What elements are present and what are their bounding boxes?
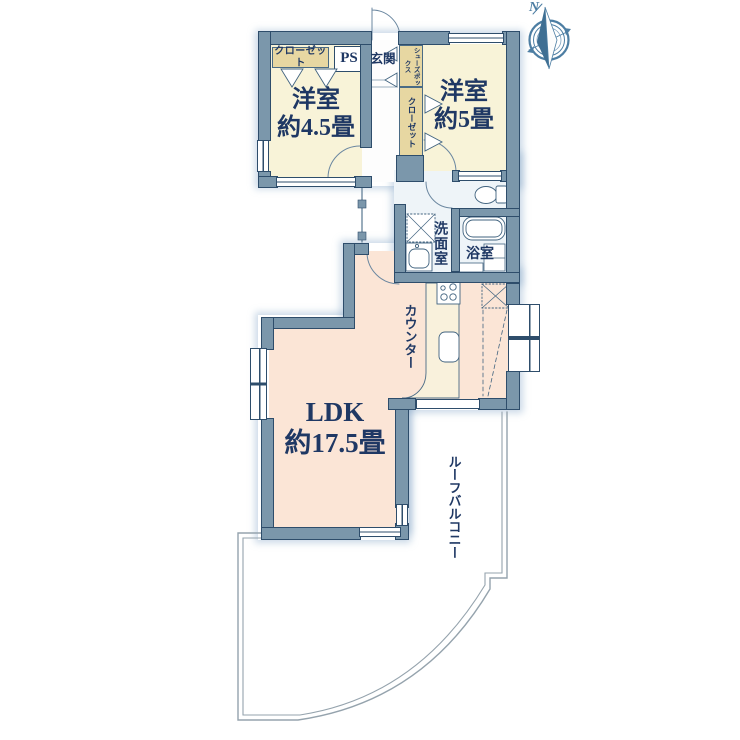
wall — [452, 208, 520, 217]
refrigerator-space — [482, 284, 509, 396]
window — [448, 33, 504, 43]
bedroom1-label: 洋室 約4.5畳 — [266, 84, 366, 146]
ldk-size: 約17.5畳 — [284, 428, 385, 459]
toilet-door-arc — [426, 182, 452, 208]
window — [396, 504, 408, 526]
bedroom2-name: 洋室 — [440, 79, 488, 107]
washroom-label: 洗面室 — [428, 212, 450, 274]
toilet-icon — [475, 186, 507, 204]
bedroom1-size: 約4.5畳 — [277, 115, 355, 143]
closet1-label: クローゼット — [272, 47, 329, 68]
window — [416, 399, 480, 409]
ldk-label: LDK 約17.5畳 — [268, 394, 402, 462]
bedroom2-size: 約5畳 — [434, 107, 494, 135]
wall — [506, 31, 520, 283]
window — [359, 527, 401, 537]
closet2-label: クローゼット — [399, 87, 423, 157]
wall — [506, 283, 520, 305]
wall — [261, 317, 355, 329]
stove-icon — [437, 282, 460, 304]
shoes-box-label: シューズボックス — [399, 45, 423, 87]
window — [276, 177, 356, 187]
counter-label: カウンター — [399, 294, 421, 378]
entrance-door-arc — [372, 8, 400, 40]
wall — [354, 176, 372, 188]
wall — [396, 155, 424, 182]
wall — [394, 272, 520, 283]
bedroom2-label: 洋室 約5畳 — [416, 76, 512, 138]
pipe-space-label: PS — [334, 46, 364, 72]
wall — [261, 317, 274, 350]
bedroom1-name: 洋室 — [292, 87, 340, 115]
ldk-name: LDK — [306, 397, 365, 428]
wall — [258, 31, 372, 45]
bathtub-icon — [463, 217, 505, 240]
wall — [258, 176, 278, 188]
floor-plan: 洋室 約4.5畳 洋室 約5畳 LDK 約17.5畳 クローゼット PS 玄関 … — [0, 0, 740, 740]
window — [508, 304, 540, 372]
window — [458, 171, 502, 181]
wall — [506, 371, 520, 410]
wall — [398, 31, 450, 45]
bedroom1-door-arc — [328, 146, 360, 178]
window — [250, 348, 267, 420]
wall — [261, 527, 361, 540]
bathroom-label: 浴室 — [458, 246, 502, 264]
roof-balcony-label: ルーフバルコニー — [443, 448, 465, 566]
kitchen-sink-icon — [439, 332, 459, 362]
wall-nub — [358, 232, 366, 240]
entrance-label: 玄関 — [368, 50, 398, 68]
wall-nub — [358, 200, 366, 208]
compass-north-label: N — [524, 0, 544, 16]
